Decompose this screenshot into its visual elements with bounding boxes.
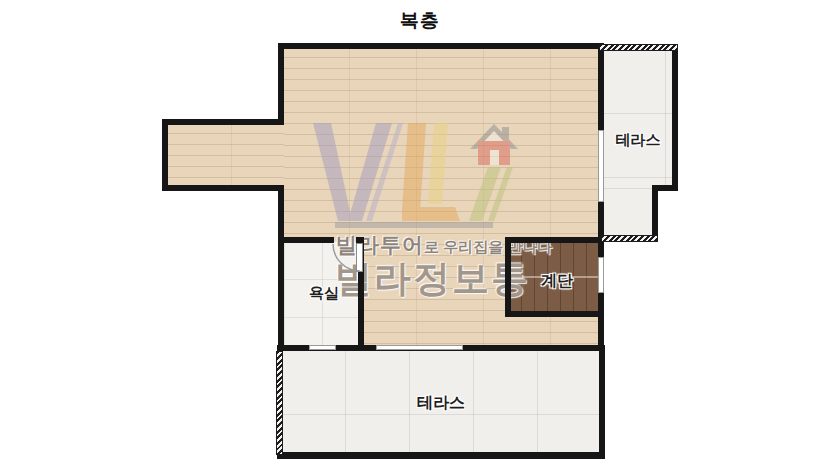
floorplan-canvas: 복층 빌라투어로 우리집을 만나다 빌라정보통 [0, 0, 840, 472]
wall-segment [505, 237, 511, 317]
main-room-left-arm-floor [164, 122, 284, 188]
wall-segment [162, 119, 284, 125]
floorplan-title: 복층 [0, 8, 840, 34]
wall-segment [599, 345, 605, 459]
stairs-label: 계단 [541, 271, 573, 292]
bathroom-label: 욕실 [309, 284, 339, 303]
window [598, 257, 604, 293]
wall-segment [278, 185, 284, 243]
terrace-right-floor-lower [601, 188, 655, 236]
wall-segment [278, 43, 284, 124]
wall-segment [278, 43, 604, 49]
terrace-bottom-label: 테라스 [417, 393, 465, 414]
window [598, 130, 604, 202]
hatched-wall [601, 235, 658, 242]
bathroom-door-swing-arc [331, 242, 361, 273]
wall-segment [278, 237, 284, 351]
wall-segment [505, 237, 600, 243]
wall-segment [505, 311, 600, 317]
wall-segment [672, 44, 678, 191]
terrace-right-floor-upper [601, 49, 674, 188]
wall-segment [652, 185, 658, 241]
hatched-wall [599, 44, 678, 51]
terrace-right-label: 테라스 [616, 131, 661, 150]
window [309, 345, 336, 350]
hatched-wall [276, 351, 283, 455]
wall-segment [278, 237, 334, 243]
wall-segment [162, 119, 168, 191]
wall-segment [162, 185, 284, 191]
wall-segment [277, 452, 605, 459]
window [376, 345, 463, 350]
